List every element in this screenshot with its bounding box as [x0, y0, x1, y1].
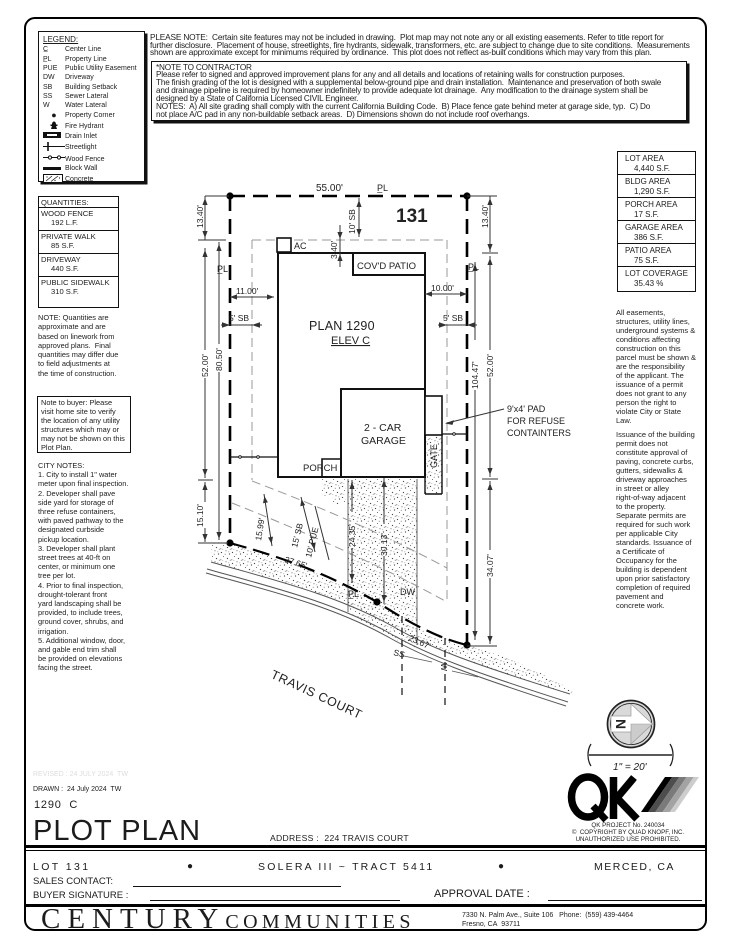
svg-text:15.99': 15.99' — [253, 517, 267, 542]
svg-text:131: 131 — [396, 206, 428, 227]
svg-text:SS: SS — [393, 647, 407, 660]
svg-text:34.07': 34.07' — [485, 554, 495, 577]
svg-text:P̲L: P̲L — [217, 264, 228, 274]
svg-text:DW: DW — [400, 587, 415, 597]
svg-text:P̲L: P̲L — [377, 183, 388, 193]
svg-text:PORCH: PORCH — [303, 463, 337, 474]
svg-text:10' PUE: 10' PUE — [303, 526, 320, 559]
svg-text:55.00': 55.00' — [316, 183, 343, 194]
svg-text:W: W — [439, 663, 449, 671]
svg-text:9'x4' PAD: 9'x4' PAD — [507, 404, 546, 414]
svg-text:P̲L: P̲L — [468, 262, 479, 272]
svg-text:PLAN 1290: PLAN 1290 — [309, 319, 375, 333]
svg-text:104.47': 104.47' — [470, 361, 480, 389]
svg-text:5' SB: 5' SB — [443, 313, 463, 323]
svg-text:15.10': 15.10' — [195, 504, 205, 527]
svg-text:5' SB: 5' SB — [229, 313, 249, 323]
svg-text:2 - CAR: 2 - CAR — [364, 422, 402, 434]
svg-text:P̲L: P̲L — [348, 589, 359, 599]
svg-text:GATE: GATE — [429, 444, 439, 468]
svg-text:1" = 20': 1" = 20' — [613, 762, 648, 773]
svg-text:GARAGE: GARAGE — [361, 435, 406, 447]
svg-text:10' SB: 10' SB — [347, 209, 357, 234]
svg-text:3.40': 3.40' — [329, 240, 339, 259]
svg-text:15' SB: 15' SB — [289, 522, 305, 549]
svg-text:13.40': 13.40' — [480, 205, 490, 228]
svg-text:80.50': 80.50' — [214, 348, 224, 371]
svg-text:30.13': 30.13' — [379, 533, 389, 556]
svg-text:52.00': 52.00' — [200, 354, 210, 377]
svg-text:52.00': 52.00' — [485, 354, 495, 377]
svg-text:AC: AC — [294, 241, 307, 251]
svg-text:ELEV C: ELEV C — [331, 335, 370, 347]
svg-text:COV'D PATIO: COV'D PATIO — [357, 261, 416, 272]
svg-text:13.40': 13.40' — [195, 205, 205, 228]
svg-text:FOR REFUSE: FOR REFUSE — [507, 416, 565, 426]
svg-text:11.00': 11.00' — [236, 286, 259, 296]
svg-text:CONTAINTERS: CONTAINTERS — [507, 428, 571, 438]
svg-text:TRAVIS COURT: TRAVIS COURT — [269, 667, 365, 722]
svg-text:N: N — [613, 719, 629, 729]
svg-text:10.00': 10.00' — [431, 283, 454, 293]
svg-text:24.35': 24.35' — [347, 524, 357, 547]
